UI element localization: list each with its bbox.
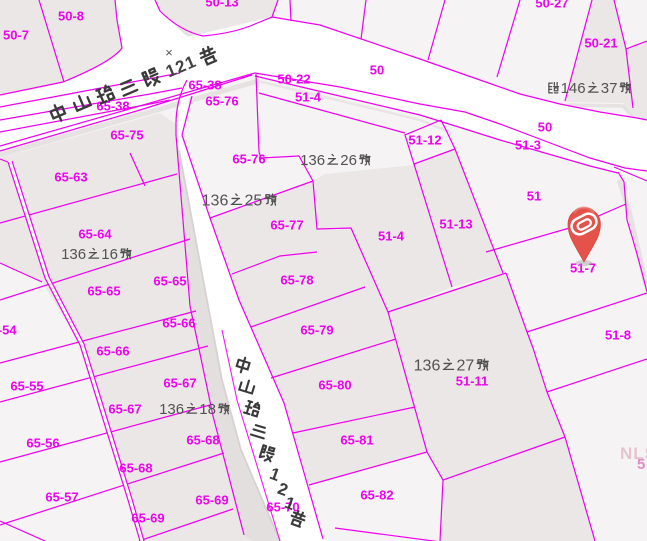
svg-text:136: 136 [202,192,229,209]
svg-text:50-13: 50-13 [205,0,238,10]
svg-text:65-76: 65-76 [205,94,238,109]
svg-text:×: × [165,45,173,60]
svg-text:5: 5 [637,456,645,473]
svg-text:50-8: 50-8 [58,9,84,24]
svg-text:65-78: 65-78 [280,273,313,288]
svg-text:136: 136 [300,152,325,169]
svg-text:51-11: 51-11 [456,374,489,389]
svg-text:51-4: 51-4 [378,229,405,244]
svg-text:65-75: 65-75 [110,128,143,143]
svg-text:65-57: 65-57 [45,490,78,505]
svg-text:65-65: 65-65 [87,284,120,299]
svg-text:65-65: 65-65 [153,274,186,289]
svg-text:65-82: 65-82 [360,488,393,503]
svg-text:37: 37 [601,80,618,97]
svg-text:65-69: 65-69 [195,493,228,508]
svg-text:50-7: 50-7 [3,28,29,43]
svg-text:146: 146 [561,80,586,97]
svg-text:65-79: 65-79 [300,323,333,338]
svg-text:65-54: 65-54 [0,323,17,338]
svg-text:65-38: 65-38 [96,99,129,114]
svg-text:136: 136 [61,246,86,263]
svg-text:65-63: 65-63 [54,170,87,185]
svg-text:51-3: 51-3 [515,138,541,153]
svg-text:65-68: 65-68 [119,461,152,476]
svg-text:136: 136 [159,401,184,418]
svg-text:51: 51 [527,189,541,204]
svg-text:65-81: 65-81 [340,433,373,448]
svg-text:65-38: 65-38 [188,78,221,93]
svg-text:65-64: 65-64 [78,227,112,242]
svg-text:26: 26 [340,152,357,169]
svg-text:18: 18 [199,401,216,418]
svg-text:65-69: 65-69 [131,511,164,526]
svg-text:50: 50 [370,63,384,78]
svg-text:50-22: 50-22 [277,72,310,87]
svg-text:51-13: 51-13 [439,217,472,232]
svg-text:51-12: 51-12 [408,133,441,148]
svg-text:25: 25 [245,192,263,209]
svg-text:65-66: 65-66 [162,316,195,331]
svg-text:65-67: 65-67 [163,376,196,391]
svg-text:65-55: 65-55 [10,379,43,394]
svg-text:27: 27 [457,357,475,374]
svg-text:51-8: 51-8 [605,328,631,343]
svg-text:65-80: 65-80 [318,378,351,393]
svg-text:65-67: 65-67 [108,402,141,417]
svg-text:65-76: 65-76 [232,152,265,167]
svg-text:65-66: 65-66 [96,344,129,359]
svg-text:50-27: 50-27 [535,0,568,11]
svg-text:65-56: 65-56 [26,436,59,451]
svg-text:51-4: 51-4 [295,90,322,105]
svg-text:16: 16 [101,246,118,263]
svg-text:65-68: 65-68 [186,433,219,448]
svg-text:136: 136 [414,357,441,374]
svg-text:50: 50 [538,120,552,135]
svg-text:50-21: 50-21 [584,36,617,51]
svg-text:65-77: 65-77 [270,218,303,233]
